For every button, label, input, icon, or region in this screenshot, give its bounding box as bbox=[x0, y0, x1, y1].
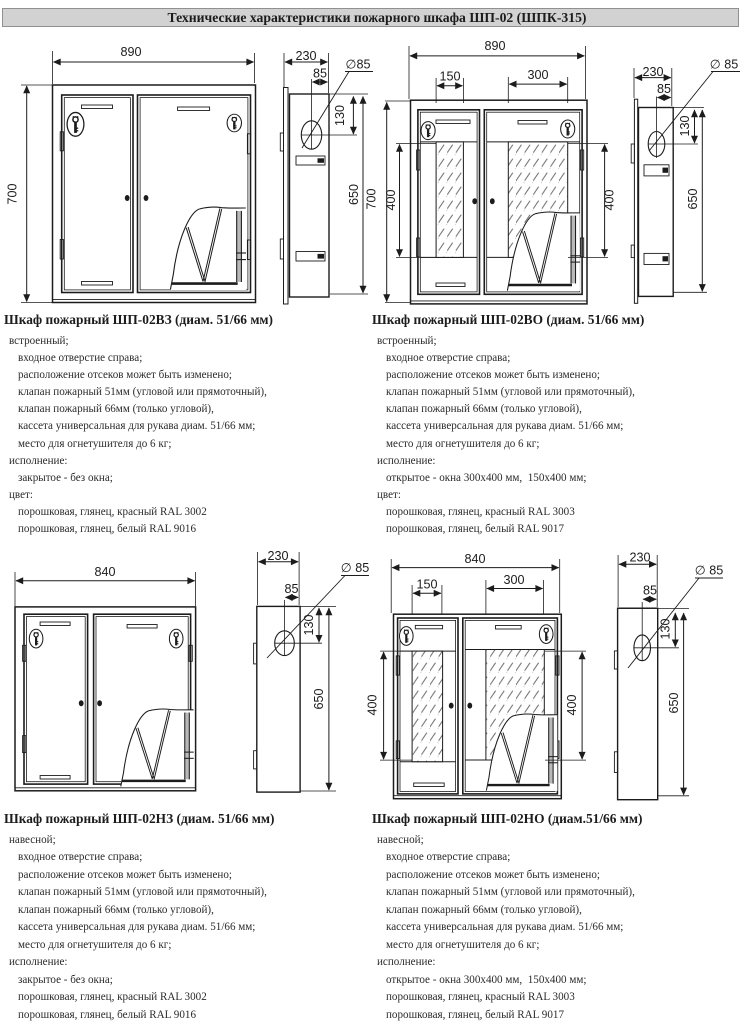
svg-text:300: 300 bbox=[503, 573, 524, 587]
svg-text:230: 230 bbox=[642, 65, 663, 79]
svg-text:650: 650 bbox=[347, 184, 361, 205]
svg-text:130: 130 bbox=[333, 105, 347, 126]
svg-text:840: 840 bbox=[464, 552, 485, 566]
svg-text:840: 840 bbox=[94, 565, 115, 579]
svg-text:130: 130 bbox=[659, 618, 673, 639]
svg-text:230: 230 bbox=[267, 549, 288, 563]
svg-text:400: 400 bbox=[565, 694, 579, 715]
svg-text:85: 85 bbox=[657, 82, 671, 96]
svg-text:150: 150 bbox=[439, 70, 460, 84]
svg-text:230: 230 bbox=[629, 551, 650, 565]
svg-text:890: 890 bbox=[484, 39, 505, 53]
svg-text:400: 400 bbox=[384, 189, 398, 210]
svg-text:400: 400 bbox=[366, 694, 380, 715]
svg-text:650: 650 bbox=[686, 188, 700, 209]
svg-text:650: 650 bbox=[667, 692, 681, 713]
svg-text:∅85: ∅85 bbox=[346, 58, 371, 72]
svg-text:700: 700 bbox=[6, 183, 20, 204]
svg-text:300: 300 bbox=[527, 68, 548, 82]
svg-text:650: 650 bbox=[312, 688, 326, 709]
svg-text:130: 130 bbox=[302, 614, 316, 635]
svg-text:85: 85 bbox=[643, 584, 657, 598]
svg-text:890: 890 bbox=[120, 45, 141, 59]
svg-text:700: 700 bbox=[365, 188, 379, 209]
svg-text:∅ 85: ∅ 85 bbox=[695, 564, 723, 578]
svg-text:230: 230 bbox=[295, 49, 316, 63]
svg-text:150: 150 bbox=[416, 578, 437, 592]
svg-text:∅ 85: ∅ 85 bbox=[341, 561, 369, 575]
svg-text:85: 85 bbox=[284, 582, 298, 596]
svg-text:85: 85 bbox=[313, 67, 327, 81]
svg-text:∅ 85: ∅ 85 bbox=[710, 58, 738, 72]
svg-text:130: 130 bbox=[678, 115, 692, 136]
svg-text:400: 400 bbox=[603, 189, 617, 210]
